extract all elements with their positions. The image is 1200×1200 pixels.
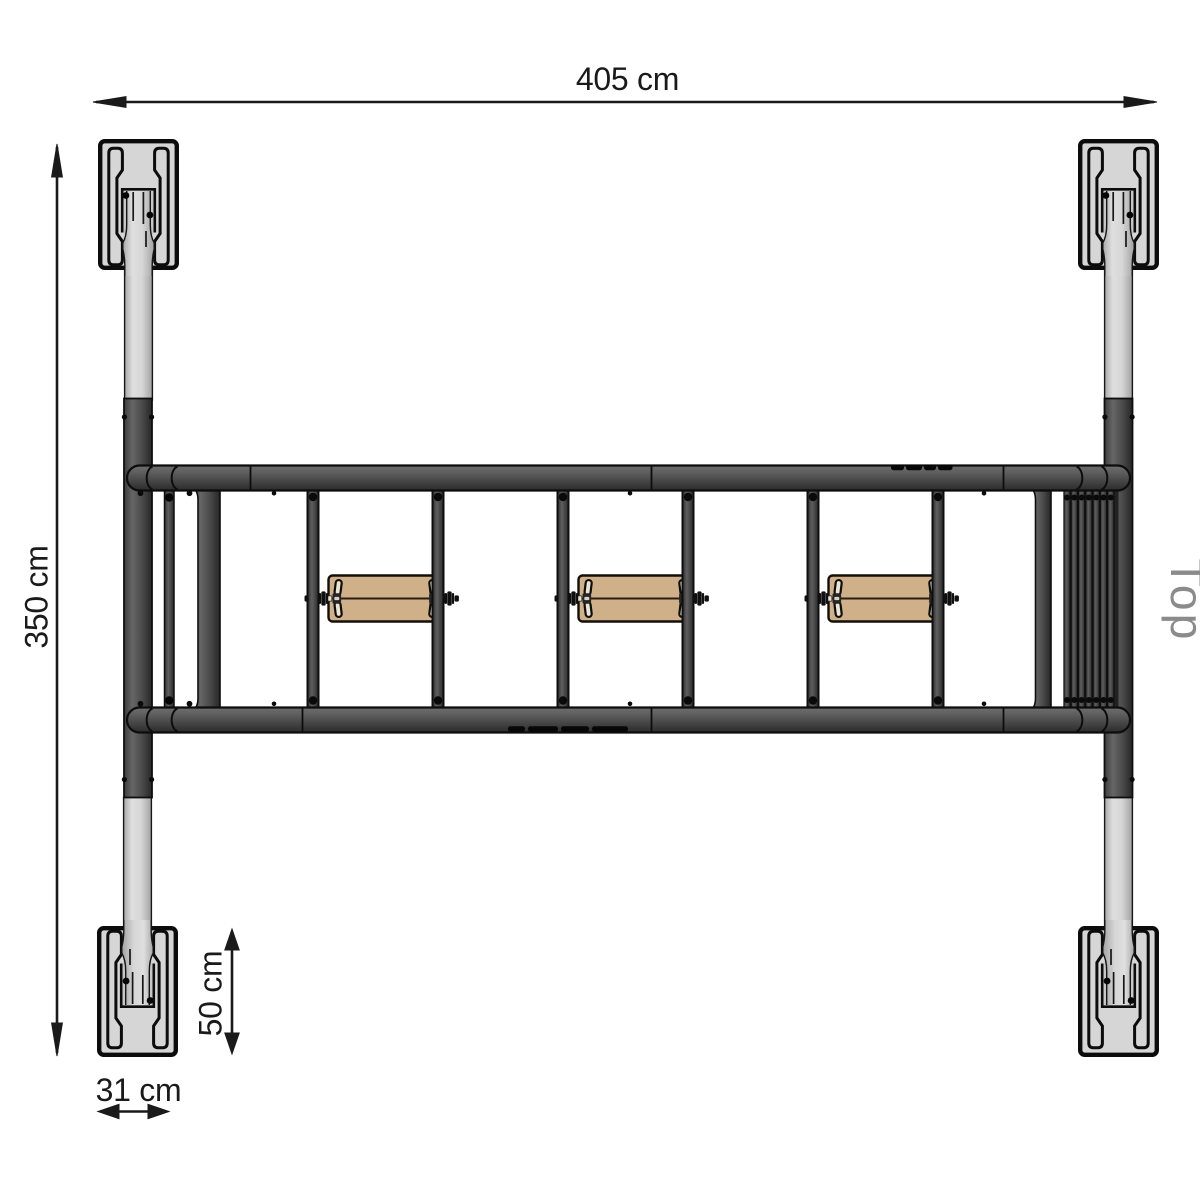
svg-text:50 cm: 50 cm [193, 951, 229, 1037]
svg-text:350 cm: 350 cm [19, 545, 55, 648]
svg-text:Top: Top [1161, 559, 1200, 643]
svg-text:405 cm: 405 cm [576, 61, 679, 97]
svg-text:31 cm: 31 cm [96, 1072, 182, 1108]
